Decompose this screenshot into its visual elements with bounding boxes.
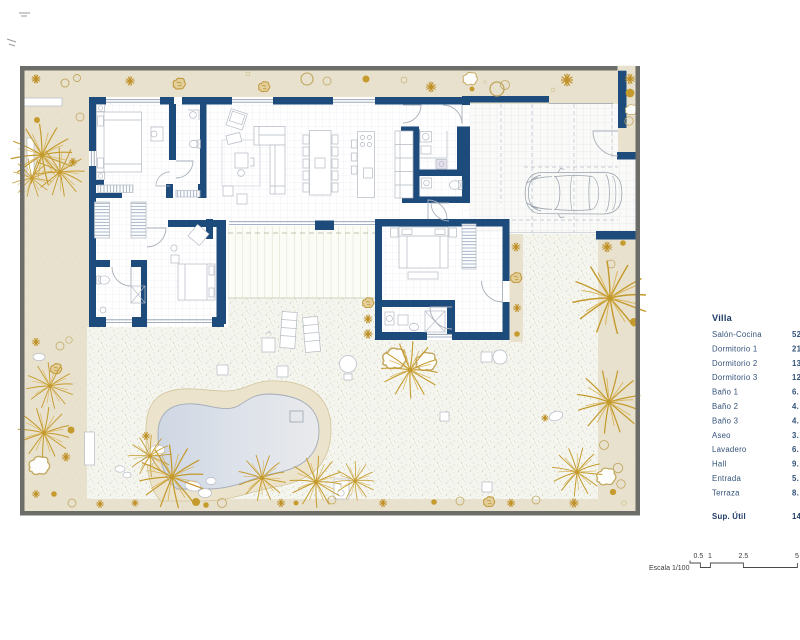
svg-text:4.: 4. (792, 402, 799, 411)
svg-text:2.5: 2.5 (739, 553, 749, 560)
svg-text:5.: 5. (792, 474, 799, 483)
svg-text:Aseo: Aseo (712, 431, 731, 440)
svg-text:14: 14 (792, 512, 800, 521)
svg-text:Baño 3: Baño 3 (712, 416, 738, 425)
svg-text:5: 5 (795, 553, 799, 560)
svg-text:0.5: 0.5 (694, 553, 704, 560)
svg-text:Baño 1: Baño 1 (712, 388, 738, 397)
svg-text:Entrada: Entrada (712, 474, 741, 483)
svg-text:Terraza: Terraza (712, 488, 740, 497)
svg-text:Dormitorio 2: Dormitorio 2 (712, 359, 757, 368)
svg-text:Salón-Cocina: Salón-Cocina (712, 330, 762, 339)
svg-text:21: 21 (792, 344, 800, 353)
svg-text:4.: 4. (792, 416, 799, 425)
svg-text:8.: 8. (792, 488, 799, 497)
svg-text:6.: 6. (792, 388, 799, 397)
svg-text:Lavadero: Lavadero (712, 445, 747, 454)
svg-text:12: 12 (792, 373, 800, 382)
svg-text:Hall: Hall (712, 460, 726, 469)
svg-text:13: 13 (792, 359, 800, 368)
svg-text:Dormitorio 3: Dormitorio 3 (712, 373, 757, 382)
svg-text:Dormitorio 1: Dormitorio 1 (712, 344, 757, 353)
svg-text:1: 1 (708, 553, 712, 560)
svg-text:Villa: Villa (712, 313, 733, 323)
svg-text:Sup. Útil: Sup. Útil (712, 512, 746, 521)
svg-text:Baño 2: Baño 2 (712, 402, 738, 411)
svg-text:3.: 3. (792, 431, 799, 440)
svg-text:52: 52 (792, 330, 800, 339)
svg-text:9.: 9. (792, 460, 799, 469)
svg-text:6.: 6. (792, 445, 799, 454)
svg-text:Escala 1/100: Escala 1/100 (649, 565, 690, 572)
